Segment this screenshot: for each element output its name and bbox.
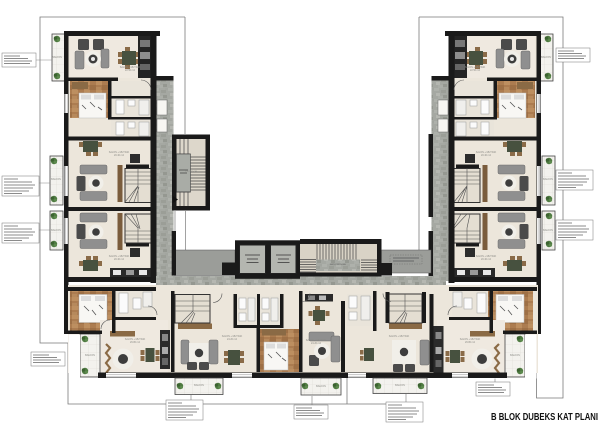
svg-text:BALKON: BALKON — [316, 385, 326, 388]
svg-text:BALKON: BALKON — [52, 56, 62, 59]
svg-text:20.40 m2: 20.40 m2 — [481, 258, 492, 261]
svg-text:24.20 m2: 24.20 m2 — [227, 338, 238, 341]
svg-text:Y.KORIDOR: Y.KORIDOR — [185, 171, 197, 173]
svg-text:KAT KORIDORU: KAT KORIDORU — [330, 263, 347, 266]
svg-text:24.20 m2: 24.20 m2 — [311, 342, 322, 345]
svg-text:BALKON: BALKON — [543, 229, 553, 232]
svg-text:BALKON: BALKON — [85, 354, 95, 357]
svg-text:BALKON: BALKON — [51, 229, 61, 232]
svg-text:BALKON: BALKON — [194, 384, 204, 387]
svg-text:BALKON: BALKON — [395, 384, 405, 387]
svg-text:SALON + MUTFAK: SALON + MUTFAK — [389, 335, 410, 338]
svg-text:BALKON: BALKON — [541, 56, 551, 59]
svg-text:20.40 m2: 20.40 m2 — [114, 154, 125, 157]
svg-text:22.50 m2: 22.50 m2 — [470, 69, 481, 72]
svg-text:22.50 m2: 22.50 m2 — [125, 69, 136, 72]
svg-text:20.40 m2: 20.40 m2 — [114, 258, 125, 261]
svg-text:26.80 m2: 26.80 m2 — [465, 341, 476, 344]
svg-text:B BLOK DUBEKS KAT PLANI: B BLOK DUBEKS KAT PLANI — [491, 412, 598, 423]
svg-text:20.40 m2: 20.40 m2 — [481, 154, 492, 157]
svg-text:BALKON: BALKON — [543, 178, 553, 181]
svg-text:BALKON: BALKON — [510, 354, 520, 357]
svg-text:26.80 m2: 26.80 m2 — [130, 341, 141, 344]
svg-text:BALKON: BALKON — [51, 178, 61, 181]
